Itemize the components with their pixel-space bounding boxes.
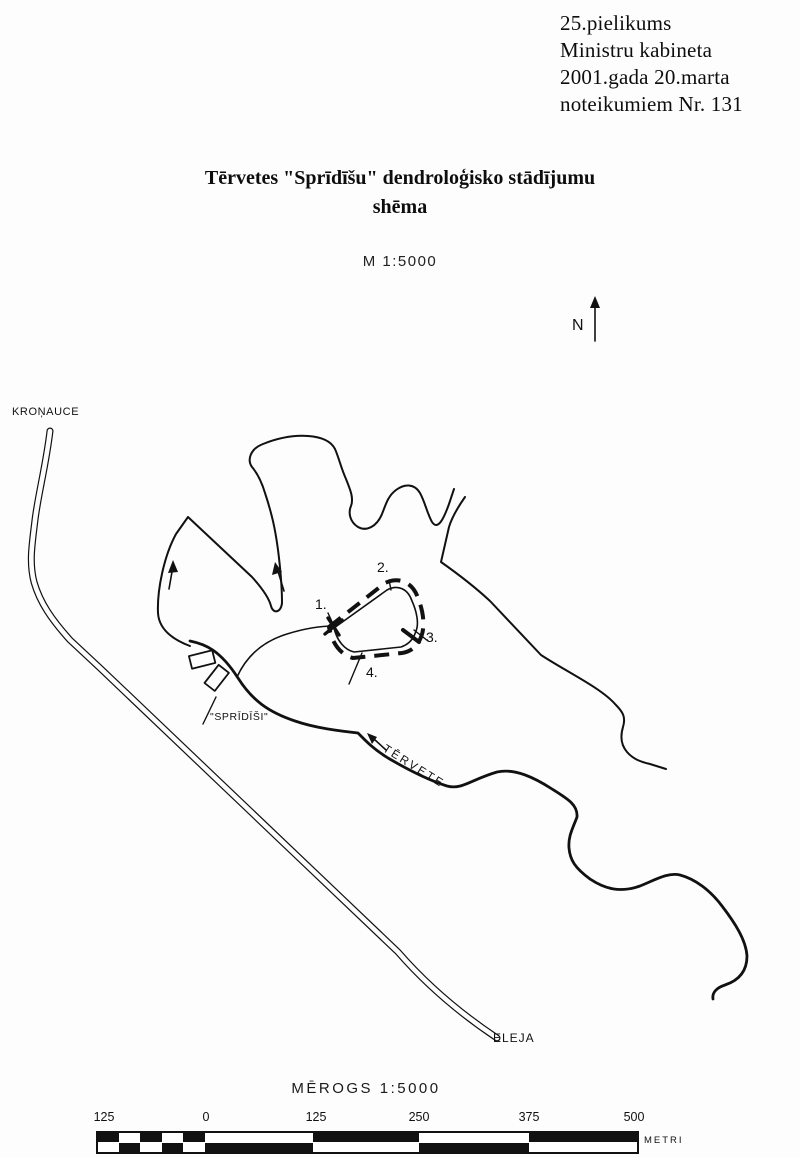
boundary-east-line bbox=[441, 497, 666, 769]
scalebar-tick: 125 bbox=[94, 1110, 115, 1124]
label-eleja: ELEJA bbox=[493, 1031, 535, 1045]
scalebar-row-bottom bbox=[98, 1143, 637, 1152]
north-label: N bbox=[572, 317, 584, 335]
site-point-4: 4. bbox=[366, 664, 378, 680]
scalebar-title: MĒROGS 1:5000 bbox=[146, 1080, 586, 1097]
north-arrow-head bbox=[590, 296, 600, 308]
site-point-1: 1. bbox=[315, 596, 327, 612]
road-inner bbox=[31, 431, 497, 1038]
building-icon bbox=[204, 665, 228, 691]
label-kronauce: KROŅAUCE bbox=[12, 406, 79, 418]
header-line: noteikumiem Nr. 131 bbox=[560, 91, 743, 118]
site-outline bbox=[334, 587, 417, 652]
scalebar-tick: 375 bbox=[519, 1110, 540, 1124]
river-line bbox=[190, 641, 747, 999]
page-title-line2: shēma bbox=[0, 193, 800, 222]
page-title: Tērvetes "Sprīdīšu" dendroloģisko stādīj… bbox=[0, 164, 800, 222]
footpath-line bbox=[237, 626, 334, 677]
header-line: 2001.gada 20.marta bbox=[560, 64, 743, 91]
scalebar-unit: METRI bbox=[644, 1135, 684, 1146]
scalebar-tick: 250 bbox=[409, 1110, 430, 1124]
road-outline bbox=[31, 431, 497, 1038]
map-scale-note: M 1:5000 bbox=[0, 253, 800, 270]
label-spridisi: "SPRĪDĪŠI" bbox=[210, 711, 268, 723]
trail-arrow-head bbox=[168, 560, 178, 573]
header-line: 25.pielikums bbox=[560, 10, 743, 37]
scalebar-row-top bbox=[98, 1133, 637, 1142]
header-line: Ministru kabineta bbox=[560, 37, 743, 64]
site-point-3: 3. bbox=[426, 629, 438, 645]
boundary-west-line bbox=[158, 436, 454, 646]
page-title-line1: Tērvetes "Sprīdīšu" dendroloģisko stādīj… bbox=[0, 164, 800, 193]
scalebar-tick: 125 bbox=[306, 1110, 327, 1124]
site-point-2: 2. bbox=[377, 559, 389, 575]
scalebar-tick: 0 bbox=[203, 1110, 210, 1124]
scalebar-tick: 500 bbox=[624, 1110, 645, 1124]
scalebar bbox=[96, 1131, 639, 1154]
regulation-header: 25.pielikums Ministru kabineta 2001.gada… bbox=[560, 10, 743, 118]
building-icon bbox=[189, 650, 215, 668]
